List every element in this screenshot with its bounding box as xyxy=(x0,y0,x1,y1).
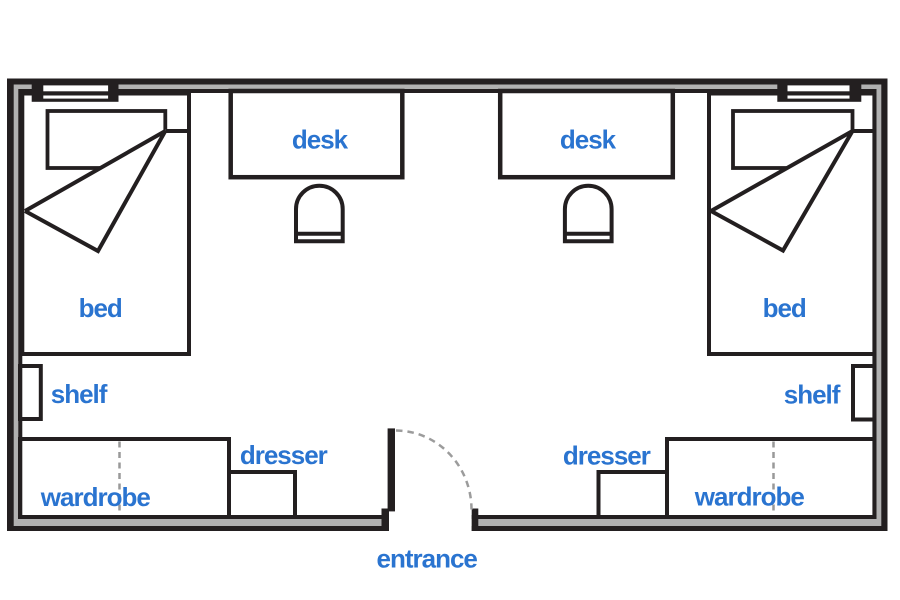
svg-text:desk: desk xyxy=(560,125,617,155)
svg-text:desk: desk xyxy=(292,125,349,155)
svg-text:dresser: dresser xyxy=(563,441,651,471)
svg-text:wardrobe: wardrobe xyxy=(40,482,151,512)
svg-text:bed: bed xyxy=(79,293,122,323)
svg-text:shelf: shelf xyxy=(784,380,841,410)
svg-text:dresser: dresser xyxy=(240,440,328,470)
svg-text:bed: bed xyxy=(763,293,806,323)
svg-text:shelf: shelf xyxy=(51,379,108,409)
svg-text:wardrobe: wardrobe xyxy=(694,482,805,512)
svg-text:entrance: entrance xyxy=(377,544,478,574)
